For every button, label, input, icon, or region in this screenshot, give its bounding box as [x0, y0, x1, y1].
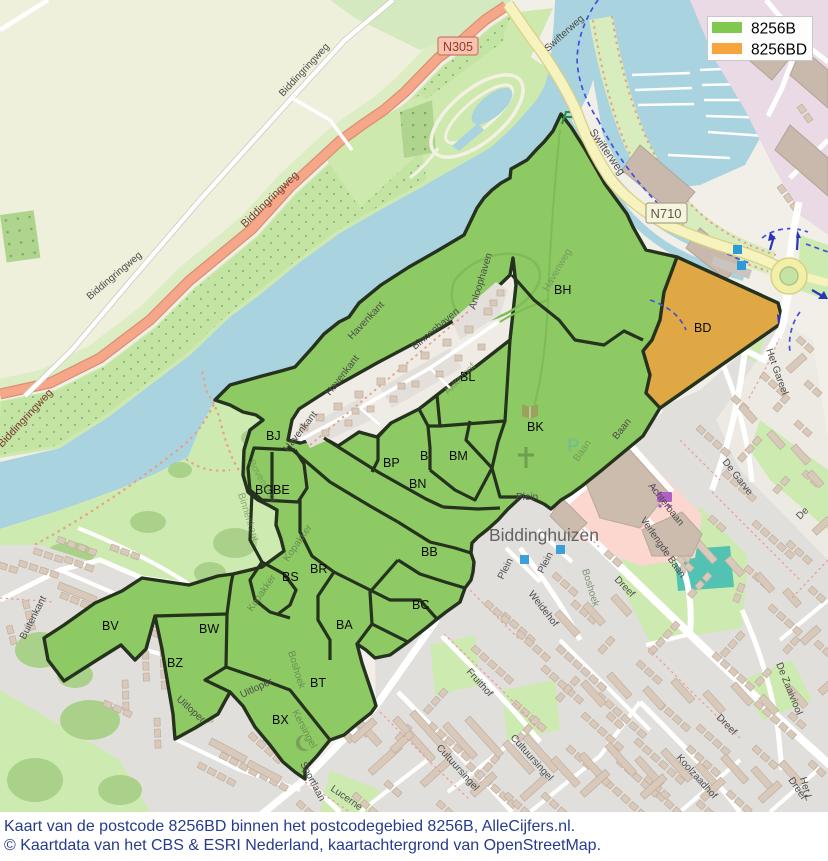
- svg-text:BP: BP: [383, 456, 400, 470]
- svg-text:Plein: Plein: [516, 492, 538, 503]
- svg-text:BA: BA: [336, 618, 353, 632]
- svg-text:8256B: 8256B: [751, 21, 796, 38]
- svg-text:BN: BN: [409, 477, 426, 491]
- svg-text:B: B: [420, 449, 428, 463]
- svg-text:© Kaartdata van het CBS & ESRI: © Kaartdata van het CBS & ESRI Nederland…: [4, 837, 601, 854]
- svg-text:BB: BB: [421, 545, 438, 559]
- svg-text:BJ: BJ: [266, 429, 281, 443]
- svg-text:BD: BD: [694, 321, 711, 335]
- svg-text:BH: BH: [554, 283, 571, 297]
- svg-text:Kaart van de postcode 8256BD b: Kaart van de postcode 8256BD binnen het …: [4, 818, 575, 835]
- svg-text:8256BD: 8256BD: [751, 42, 807, 59]
- svg-text:BX: BX: [272, 713, 289, 727]
- svg-text:BW: BW: [199, 622, 219, 636]
- svg-text:N710: N710: [650, 206, 681, 221]
- svg-text:BM: BM: [449, 449, 468, 463]
- svg-text:N305: N305: [443, 40, 473, 54]
- svg-text:BC: BC: [412, 598, 429, 612]
- svg-text:BS: BS: [282, 570, 299, 584]
- svg-text:BT: BT: [310, 676, 326, 690]
- svg-text:BV: BV: [102, 619, 119, 633]
- svg-text:BR: BR: [310, 562, 327, 576]
- svg-text:BZ: BZ: [167, 656, 183, 670]
- svg-text:Biddinghuizen: Biddinghuizen: [489, 525, 599, 545]
- svg-text:BK: BK: [527, 420, 544, 434]
